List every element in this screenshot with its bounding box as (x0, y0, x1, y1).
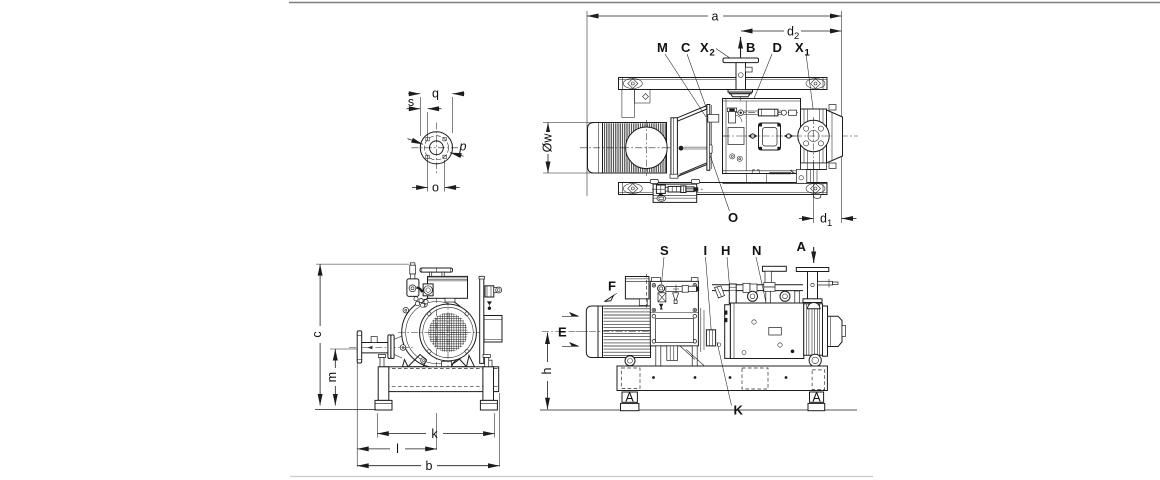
svg-text:I: I (704, 243, 708, 258)
svg-text:o: o (432, 181, 439, 195)
svg-text:S: S (660, 243, 669, 258)
svg-text:1: 1 (805, 48, 811, 59)
svg-text:Øw: Øw (541, 133, 555, 153)
svg-text:b: b (426, 459, 433, 473)
svg-text:d: d (787, 25, 794, 39)
svg-text:m: m (325, 372, 339, 382)
svg-text:D: D (773, 40, 782, 55)
svg-text:q: q (432, 87, 439, 101)
svg-text:s: s (408, 95, 414, 109)
svg-text:k: k (431, 427, 438, 441)
svg-text:M: M (657, 40, 668, 55)
svg-text:A: A (812, 390, 821, 404)
svg-text:H: H (721, 243, 730, 258)
svg-text:E: E (558, 325, 567, 340)
svg-text:X: X (700, 40, 709, 55)
svg-text:h: h (540, 367, 554, 374)
svg-text:N: N (752, 243, 761, 258)
svg-text:1: 1 (827, 218, 832, 229)
svg-text:K: K (734, 403, 744, 418)
svg-text:A: A (625, 390, 634, 404)
svg-text:c: c (310, 331, 324, 337)
svg-text:p: p (459, 140, 467, 154)
svg-text:F: F (608, 279, 616, 294)
svg-text:a: a (712, 10, 719, 24)
svg-text:2: 2 (710, 48, 715, 59)
svg-text:O: O (728, 210, 738, 225)
svg-text:l: l (396, 442, 399, 456)
svg-text:X: X (795, 40, 804, 55)
svg-text:d: d (820, 212, 827, 226)
svg-text:B: B (746, 40, 755, 55)
svg-text:C: C (681, 40, 691, 55)
svg-text:A: A (797, 239, 807, 254)
